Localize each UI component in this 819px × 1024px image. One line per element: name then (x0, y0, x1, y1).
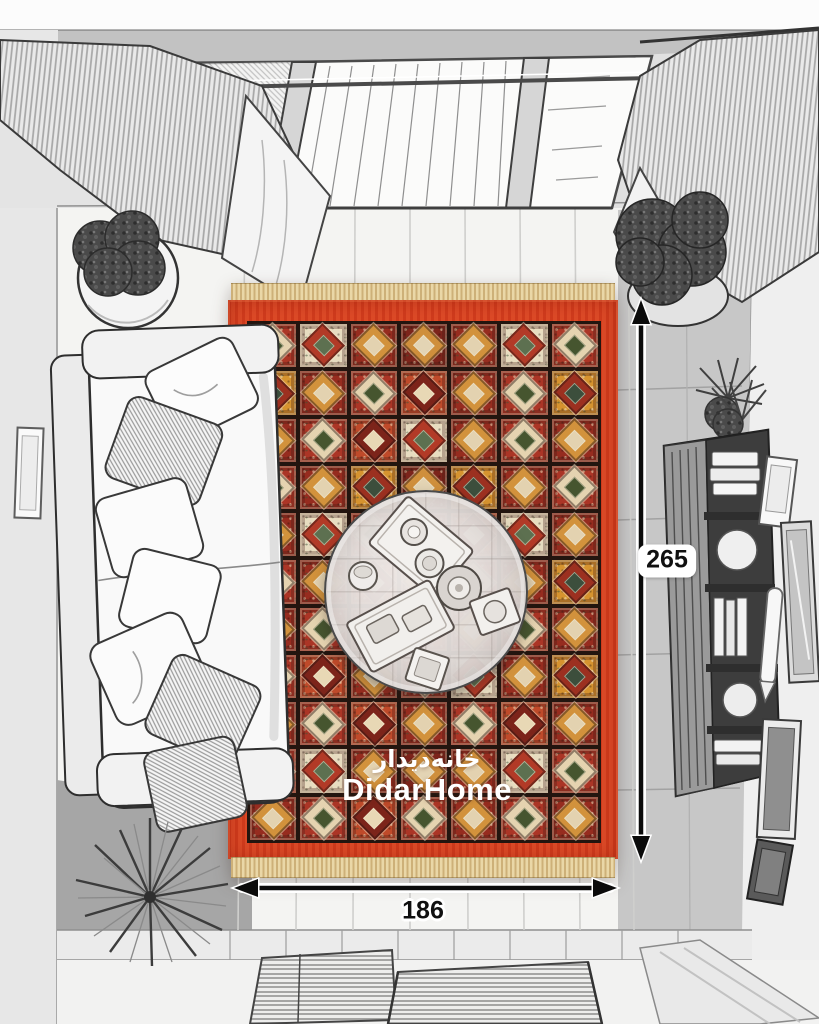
height-dimension-arrow (632, 300, 650, 860)
width-dimension-arrow (234, 879, 617, 897)
stage: خانه‌دیدار DidarHome 265 186 (0, 0, 819, 1024)
width-dimension-label: 186 (402, 897, 444, 926)
dimension-arrows (0, 0, 819, 1024)
height-dimension-label: 265 (638, 545, 696, 578)
